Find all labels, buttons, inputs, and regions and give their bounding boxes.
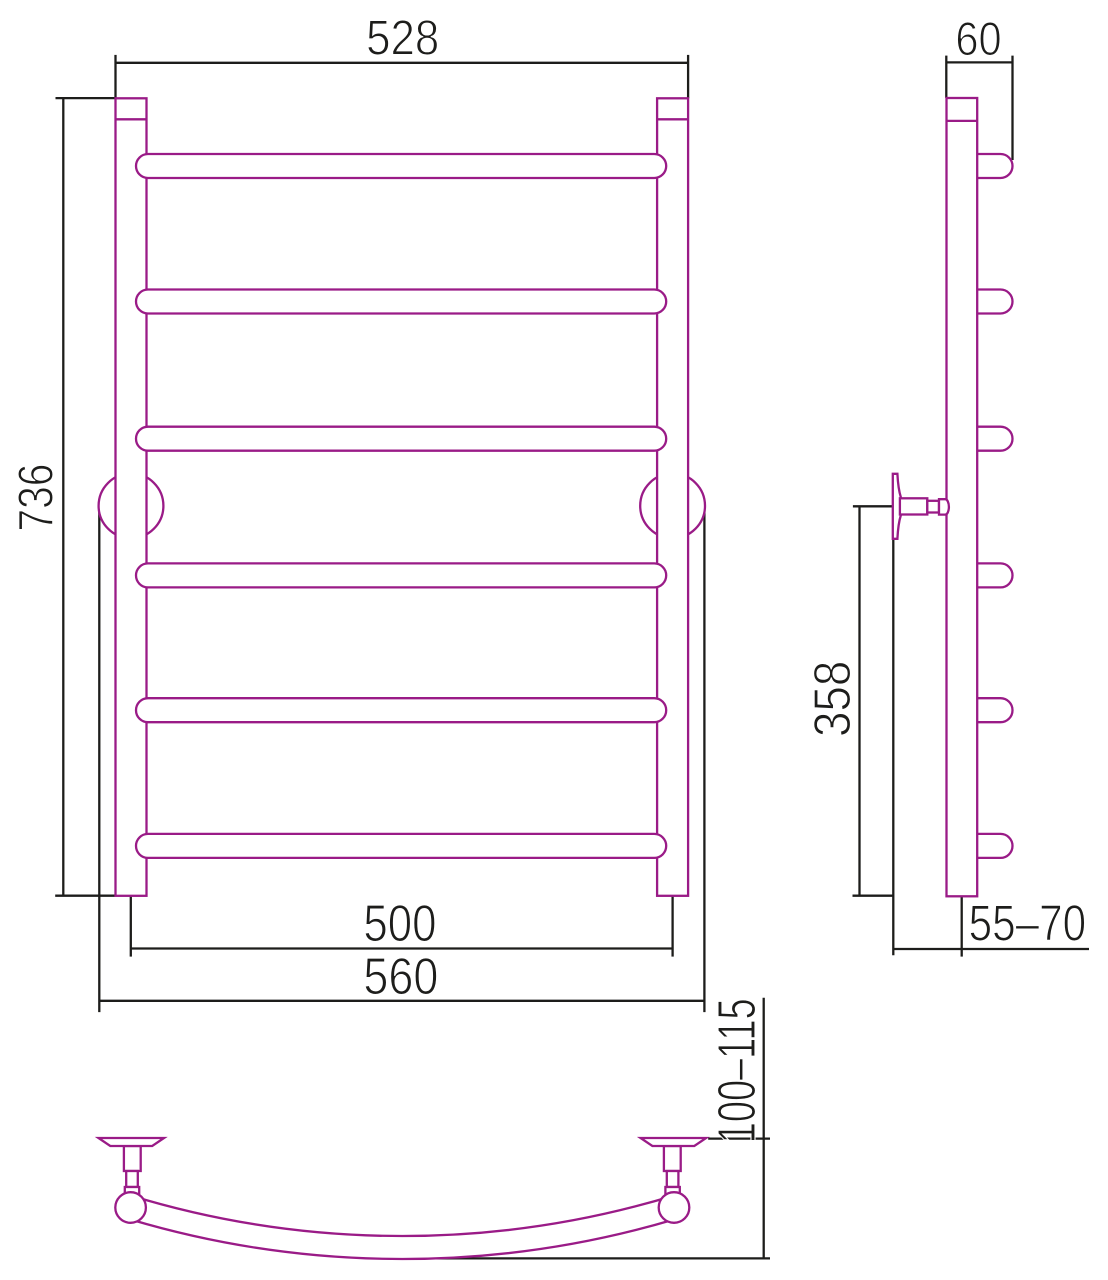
svg-text:500: 500 [363,895,436,953]
svg-text:100–115: 100–115 [707,998,767,1143]
svg-text:358: 358 [804,661,861,737]
svg-text:736: 736 [8,464,63,532]
svg-text:55–70: 55–70 [969,895,1087,952]
svg-text:60: 60 [955,13,1001,65]
svg-text:528: 528 [366,10,439,65]
svg-text:560: 560 [363,948,438,1006]
